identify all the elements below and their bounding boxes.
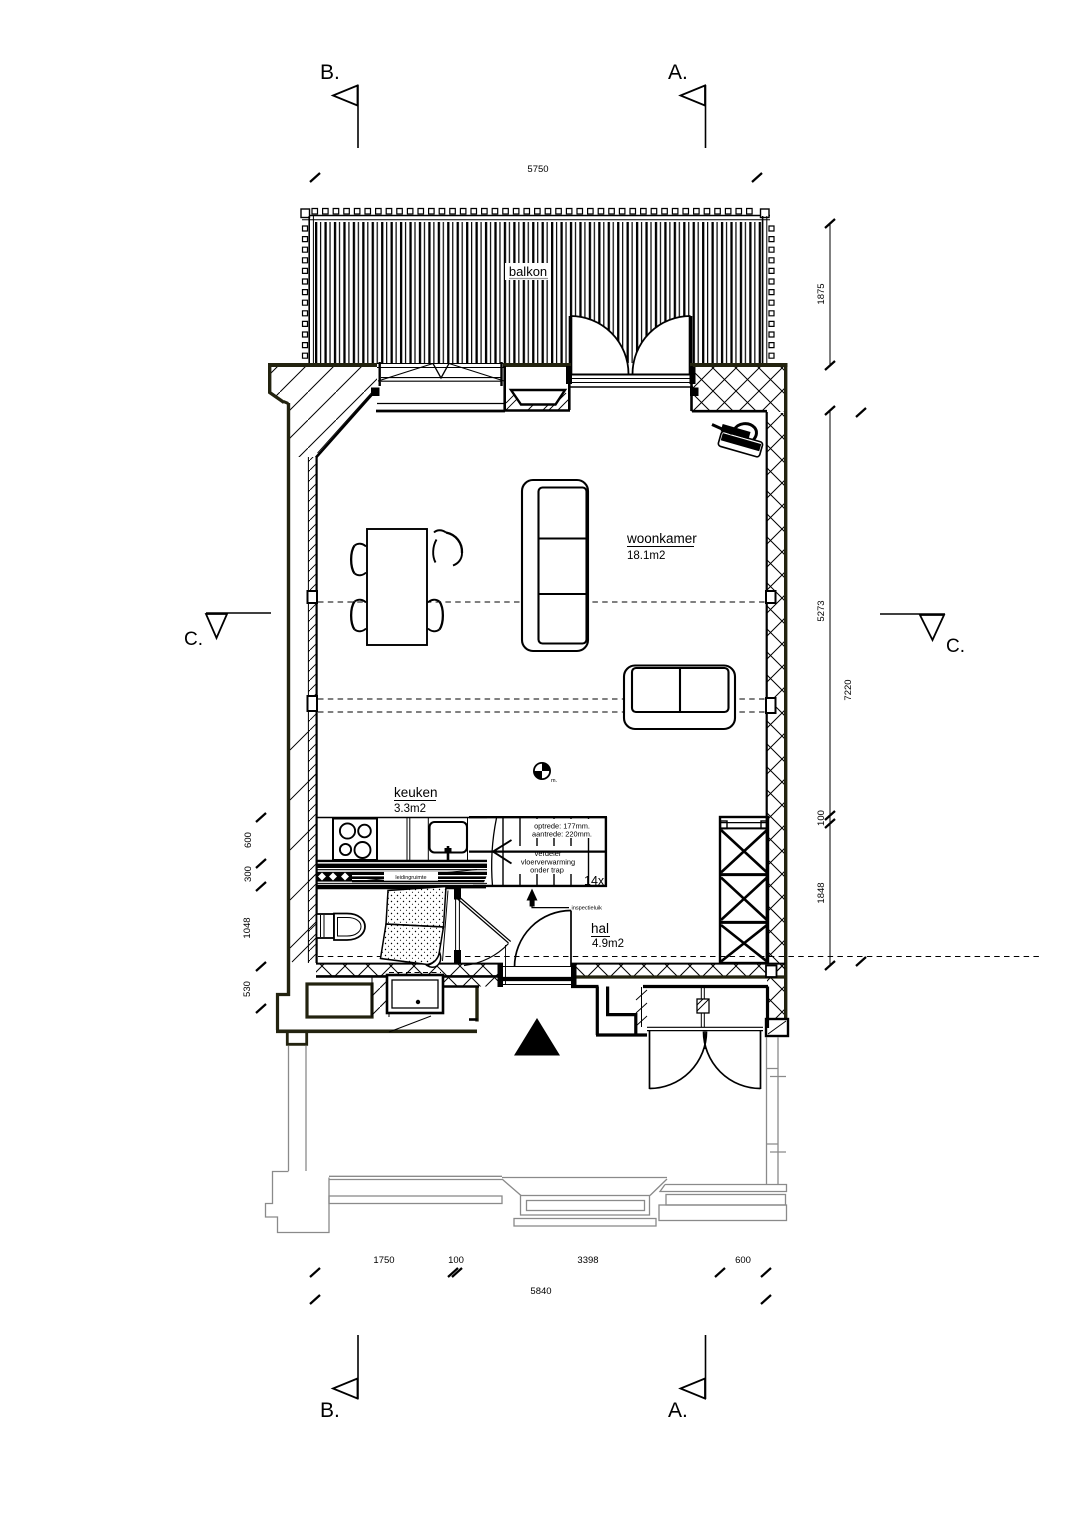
svg-text:3398: 3398	[577, 1255, 598, 1266]
svg-text:1750: 1750	[373, 1255, 394, 1266]
svg-text:600: 600	[243, 832, 254, 848]
svg-text:5750: 5750	[527, 164, 548, 175]
svg-text:inspectieluik: inspectieluik	[572, 906, 603, 912]
svg-text:4.9m2: 4.9m2	[592, 938, 624, 950]
svg-text:balkon: balkon	[509, 264, 547, 279]
svg-text:B.: B.	[320, 61, 340, 84]
svg-text:300: 300	[243, 866, 254, 882]
svg-text:onder trap: onder trap	[530, 866, 564, 875]
svg-text:7220: 7220	[843, 679, 854, 700]
svg-text:C.: C.	[184, 629, 203, 650]
svg-text:100: 100	[448, 1255, 464, 1266]
svg-text:14x: 14x	[584, 874, 605, 888]
svg-text:530: 530	[242, 981, 253, 997]
svg-text:m.: m.	[551, 778, 558, 784]
svg-text:1848: 1848	[816, 882, 827, 903]
svg-text:1048: 1048	[242, 917, 253, 938]
svg-text:hal: hal	[591, 921, 609, 936]
svg-text:3.3m2: 3.3m2	[394, 803, 426, 815]
svg-text:A.: A.	[668, 61, 688, 84]
svg-text:leidingruimte: leidingruimte	[395, 875, 426, 881]
svg-text:woonkamer: woonkamer	[626, 531, 697, 546]
svg-text:aantrede: 220mm.: aantrede: 220mm.	[532, 830, 592, 839]
svg-text:18.1m2: 18.1m2	[627, 550, 665, 562]
svg-text:5840: 5840	[530, 1286, 551, 1297]
svg-text:C.: C.	[946, 636, 965, 657]
svg-text:A.: A.	[668, 1399, 688, 1422]
svg-text:100: 100	[816, 810, 827, 826]
svg-text:B.: B.	[320, 1399, 340, 1422]
svg-text:600: 600	[735, 1255, 751, 1266]
svg-text:keuken: keuken	[394, 785, 438, 800]
svg-text:1875: 1875	[816, 283, 827, 304]
svg-text:5273: 5273	[816, 600, 827, 621]
